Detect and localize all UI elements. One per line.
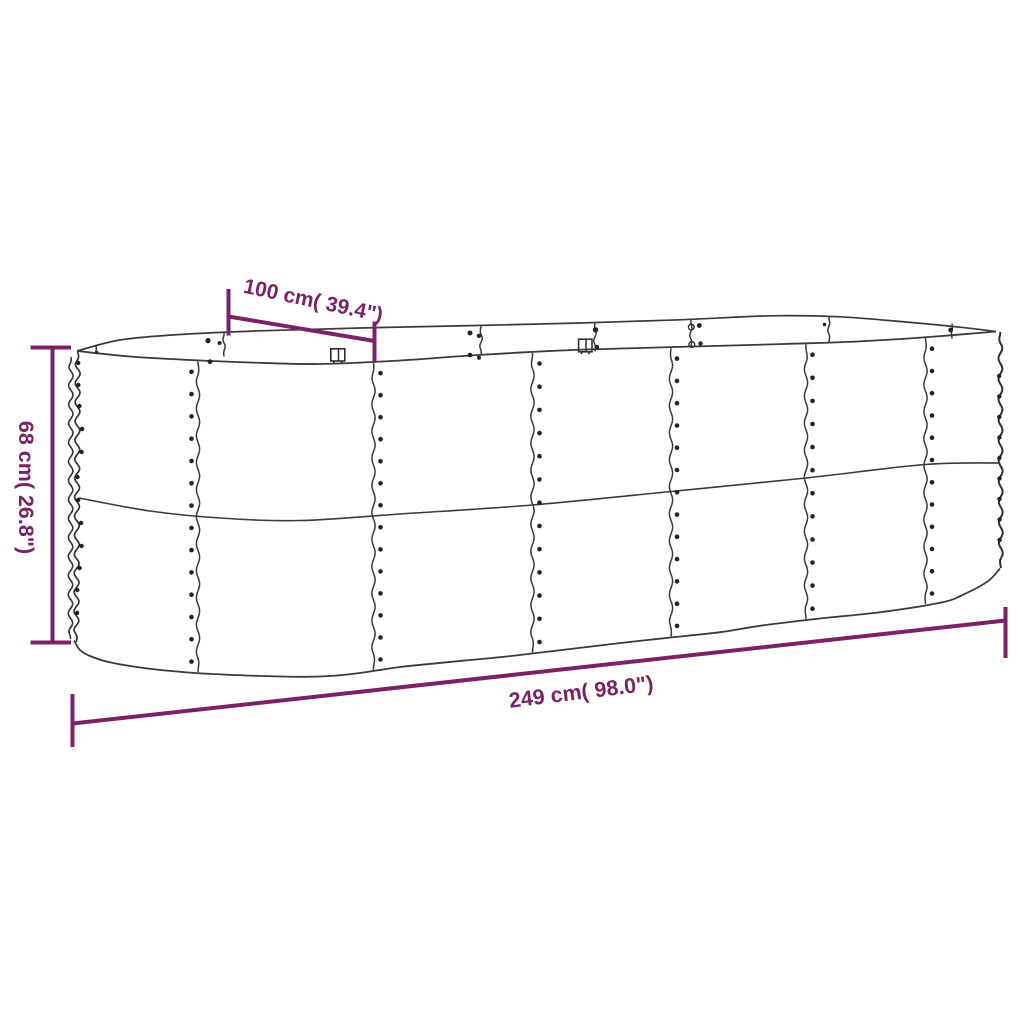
svg-text:249 cm( 98.0"): 249 cm( 98.0") bbox=[508, 671, 655, 713]
svg-text:100 cm( 39.4"): 100 cm( 39.4") bbox=[241, 275, 385, 327]
svg-text:68 cm( 26.8"): 68 cm( 26.8") bbox=[14, 421, 38, 554]
